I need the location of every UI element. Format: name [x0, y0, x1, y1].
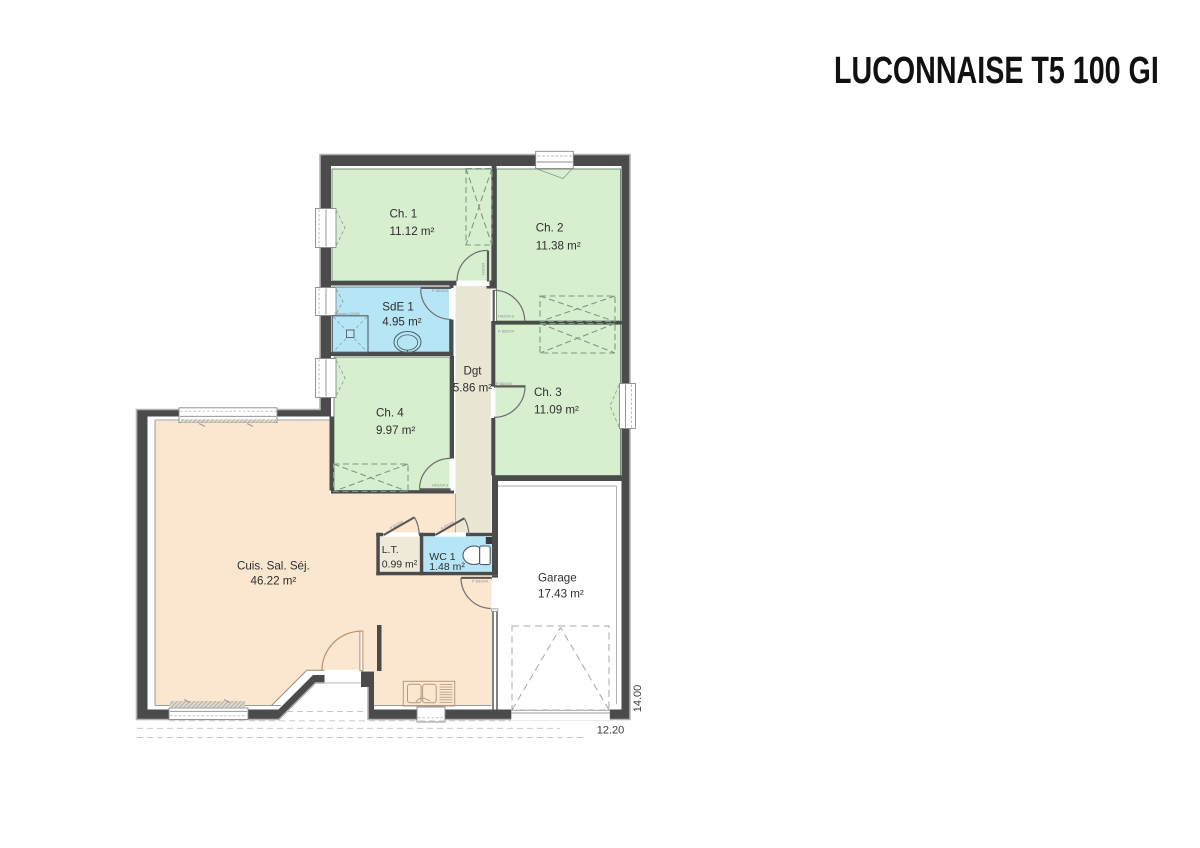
svg-text:11.12 m²: 11.12 m² — [390, 225, 435, 238]
svg-text:46.22 m²: 46.22 m² — [251, 575, 297, 588]
svg-text:11.09 m²: 11.09 m² — [534, 404, 579, 417]
svg-text:SdE 1: SdE 1 — [382, 301, 414, 314]
svg-text:1.48 m²: 1.48 m² — [429, 561, 465, 573]
svg-text:12.20: 12.20 — [597, 725, 625, 737]
svg-text:9.97 m²: 9.97 m² — [376, 424, 415, 437]
svg-text:L.T.: L.T. — [382, 544, 399, 556]
svg-text:14.00: 14.00 — [632, 685, 644, 713]
svg-text:4.95 m²: 4.95 m² — [382, 316, 421, 329]
svg-text:Dgt: Dgt — [463, 365, 482, 378]
svg-text:5.86 m²: 5.86 m² — [453, 382, 492, 395]
svg-text:Receveur 120x90: Receveur 120x90 — [335, 312, 360, 316]
svg-text:P 83/204: P 83/204 — [496, 381, 513, 386]
svg-text:11.38 m²: 11.38 m² — [536, 240, 581, 253]
svg-text:Ch. 4: Ch. 4 — [376, 407, 404, 420]
svg-text:H02/04: H02/04 — [482, 263, 486, 275]
svg-text:H02/04 d: H02/04 d — [432, 482, 448, 487]
svg-text:Ch. 2: Ch. 2 — [536, 222, 564, 235]
svg-text:P 63/204: P 63/204 — [472, 579, 489, 584]
svg-text:Cuis. Sal. Séj.: Cuis. Sal. Séj. — [237, 560, 310, 573]
svg-text:Ch. 1: Ch. 1 — [390, 208, 418, 221]
svg-text:Ch. 3: Ch. 3 — [534, 386, 562, 399]
svg-text:P 83/204: P 83/204 — [432, 288, 449, 293]
svg-text:17.43 m²: 17.43 m² — [538, 588, 584, 601]
svg-text:H02/04 d: H02/04 d — [498, 314, 514, 319]
svg-text:Garage: Garage — [538, 572, 577, 585]
svg-text:P 83/204: P 83/204 — [498, 329, 515, 334]
svg-text:0.99 m²: 0.99 m² — [382, 559, 418, 571]
